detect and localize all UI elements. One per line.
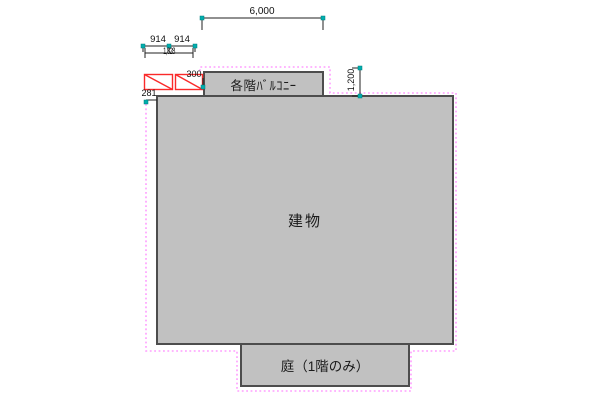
- dimension-label-300: 300: [184, 69, 204, 79]
- grip-handle[interactable]: [141, 44, 145, 48]
- dimension-label-281: 281: [138, 88, 160, 98]
- balcony-label: 各階ﾊﾞﾙｺﾆｰ: [230, 75, 296, 94]
- building-label: 建物: [288, 210, 322, 231]
- balcony-area: 各階ﾊﾞﾙｺﾆｰ: [203, 71, 324, 97]
- garden-area: 庭（1階のみ）: [240, 343, 410, 387]
- dimension-label-6000: 6,000: [232, 7, 292, 17]
- grip-handle[interactable]: [321, 16, 325, 20]
- grip-handle[interactable]: [144, 100, 148, 104]
- grip-handle[interactable]: [358, 66, 362, 70]
- dimension-label-1828: 1,828: [160, 47, 179, 57]
- dimension-line-6000: [202, 18, 323, 30]
- dimension-label-1200: 1,200: [346, 65, 358, 95]
- building-area: 建物: [156, 95, 454, 345]
- dimension-label-914-left: 914: [146, 35, 170, 45]
- site-plan-canvas: 各階ﾊﾞﾙｺﾆｰ 庭（1階のみ） 建物: [0, 0, 600, 400]
- grip-handle[interactable]: [200, 16, 204, 20]
- garden-label: 庭（1階のみ）: [281, 355, 370, 375]
- dimension-label-914-right: 914: [170, 35, 194, 45]
